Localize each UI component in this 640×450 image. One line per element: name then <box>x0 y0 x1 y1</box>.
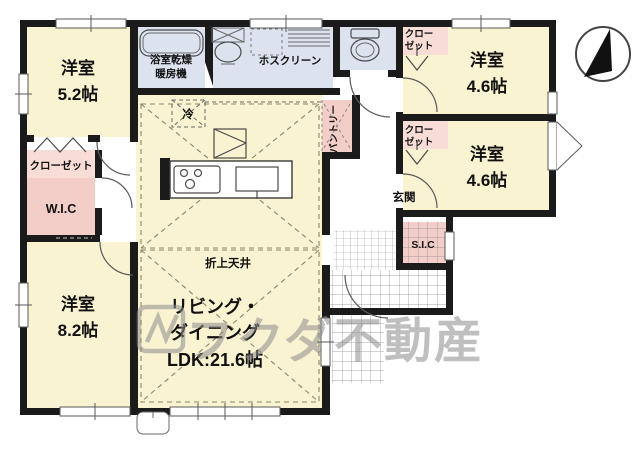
floorplan-page: 洋室 5.2帖 クローゼット W.I.C 洋室 8.2帖 浴室乾燥 暖房機 ホス… <box>0 0 640 450</box>
kitchen-island <box>170 161 292 199</box>
bath-door-mark <box>205 62 213 86</box>
label-pantry: パントリー <box>328 105 340 153</box>
label-ceiling: 折上天井 <box>205 256 251 270</box>
label-bedroom46a-size: 4.6帖 <box>467 76 508 96</box>
room-bedroom-5-2 <box>27 27 130 137</box>
watermark-text: フクダ不動産 <box>186 315 484 368</box>
label-entrance: 玄関 <box>393 190 416 204</box>
label-bedroom46a-name: 洋室 <box>470 50 504 70</box>
room-toilet <box>340 27 396 70</box>
water-heater-unit <box>137 412 169 434</box>
label-bedroom52-name: 洋室 <box>61 58 95 78</box>
door-wic <box>102 178 132 208</box>
label-bath-line1: 浴室乾燥 <box>150 53 192 66</box>
watermark: フクダ不動産 <box>139 307 484 368</box>
label-bedroom46b-size: 4.6帖 <box>467 170 508 190</box>
folding-door-closet-left <box>34 138 86 152</box>
label-laundry: ホスクリーン <box>259 55 321 67</box>
label-bath-line2: 暖房機 <box>155 67 187 80</box>
window-right-bedroom46a <box>548 92 557 114</box>
label-sic: S.I.C <box>411 239 435 251</box>
label-closet-a-line1: クロー <box>405 29 434 40</box>
entrance-tile-grid <box>334 230 396 270</box>
label-closet-a-line2: ゼット <box>405 40 434 52</box>
label-closet-b-line2: ゼット <box>405 136 434 148</box>
label-bedroom46b-name: 洋室 <box>470 144 504 164</box>
label-closet-b-line1: クロー <box>405 125 434 136</box>
floorplan-canvas: 洋室 5.2帖 クローゼット W.I.C 洋室 8.2帖 浴室乾燥 暖房機 ホス… <box>0 0 640 450</box>
label-closet-left: クローゼット <box>30 159 93 172</box>
label-wic: W.I.C <box>46 202 77 216</box>
compass-north-icon <box>576 27 630 81</box>
label-bedroom82-size: 8.2帖 <box>58 320 99 340</box>
label-bedroom52-size: 5.2帖 <box>58 84 99 104</box>
window-right-bedroom46b <box>548 122 582 170</box>
window-sic <box>445 232 454 260</box>
label-bedroom82-name: 洋室 <box>61 294 95 314</box>
label-fridge: 冷 <box>182 107 194 121</box>
